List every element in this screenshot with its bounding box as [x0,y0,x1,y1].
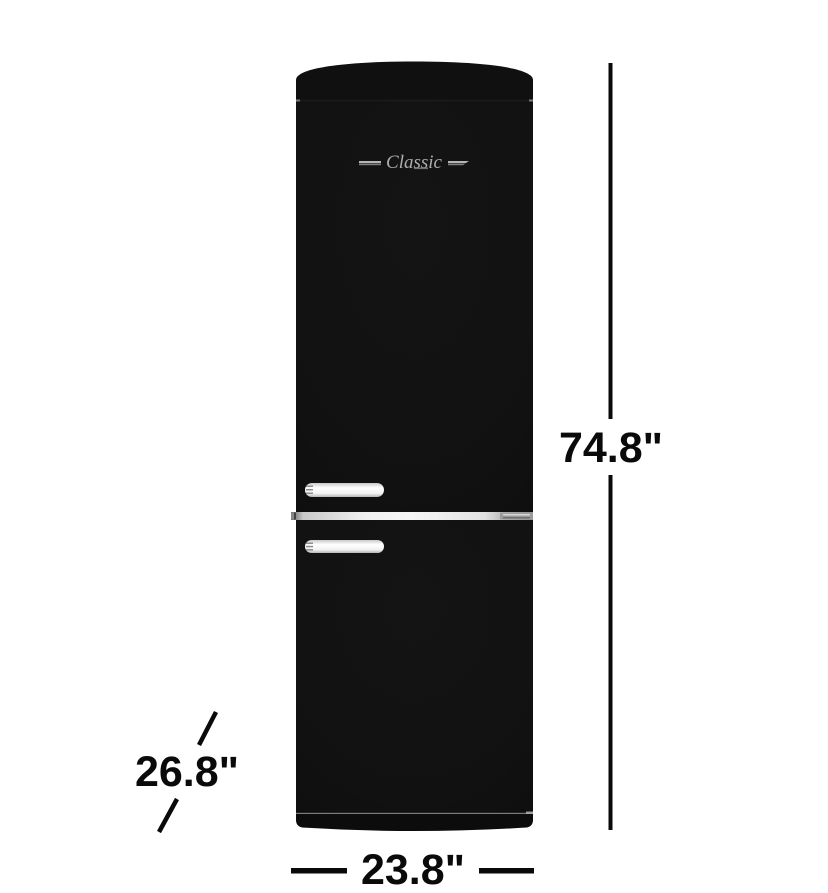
svg-text:Classic: Classic [386,152,443,173]
svg-text:23.8": 23.8" [361,846,465,893]
svg-text:74.8": 74.8" [559,424,663,472]
svg-text:26.8": 26.8" [135,748,239,796]
